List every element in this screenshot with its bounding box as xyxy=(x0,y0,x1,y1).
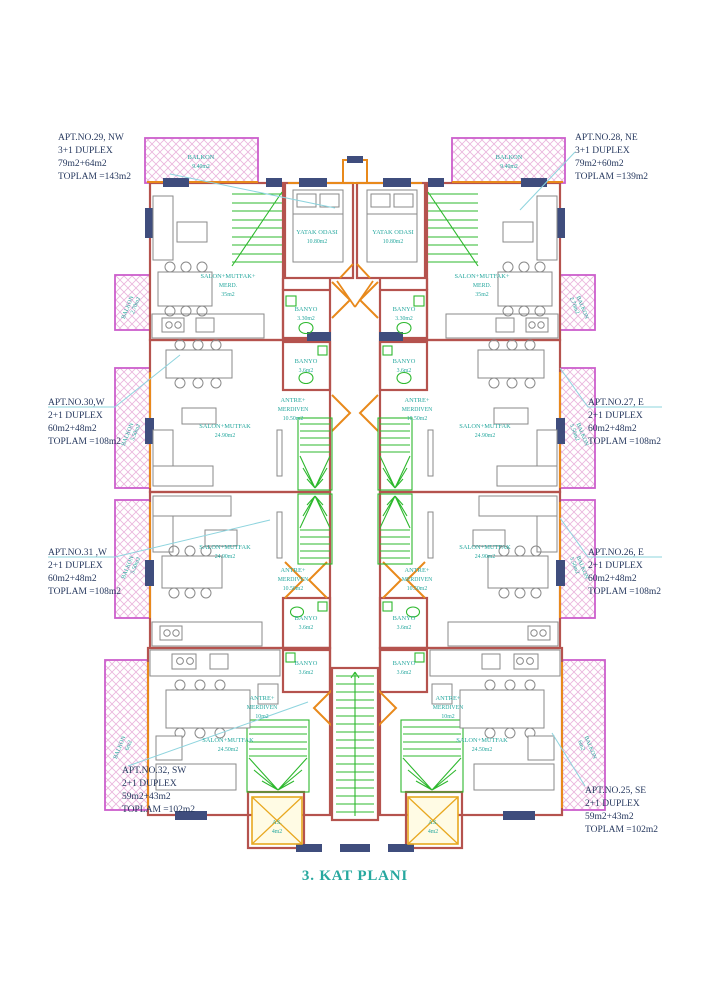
shower-icon xyxy=(318,602,327,611)
apt25-line3: 59m2+43m2 xyxy=(585,812,634,822)
room-area-bedroom-right: 10.80m2 xyxy=(383,239,404,245)
room-area-antre-sw: 10m2 xyxy=(255,714,268,720)
room-label-antre-w1b: MERDIVEN xyxy=(278,407,309,413)
apt29-line4: TOPLAM =143m2 xyxy=(58,172,131,182)
room-label-banyo-e3: BANYO xyxy=(393,615,416,622)
room-area-balkon-ne: 9.40m2 xyxy=(500,164,518,170)
entry-door-chevron-apt30 xyxy=(332,395,350,431)
apt27-line2: 2+1 DUPLEX xyxy=(588,411,643,421)
room-area-salon-ne: 35m2 xyxy=(475,292,488,298)
room-area-salon-se: 24.50m2 xyxy=(472,747,493,753)
apt26-line4: TOPLAM =108m2 xyxy=(588,587,661,597)
room-label-antre-seb: MERDIVEN xyxy=(433,705,464,711)
apartment-callout-apt27: APT.NO.27, E 2+1 DUPLEX 60m2+48m2 TOPLAM… xyxy=(588,398,661,447)
room-label-banyo-w4: BANYO xyxy=(295,660,318,667)
room-area-banyo-wl: 3.30m2 xyxy=(297,316,315,322)
room-label-antre-e1: ANTRE+ xyxy=(405,397,430,404)
apt32-line4: TOPLAM =102m2 xyxy=(122,805,195,815)
apt25-line4: TOPLAM =102m2 xyxy=(585,825,658,835)
apt26-line3: 60m2+48m2 xyxy=(588,574,637,584)
apt25-line2: 2+1 DUPLEX xyxy=(585,799,640,809)
stair-apt30 xyxy=(298,418,332,490)
room-area-banyo-w2: 3.6m2 xyxy=(299,368,314,374)
room-label-salon-sw: SALON+MUTFAK xyxy=(202,737,254,744)
room-area-elevator-left: 4m2 xyxy=(272,829,282,835)
apt29-line3: 79m2+64m2 xyxy=(58,159,107,169)
apt25-line1: APT.NO.25, SE xyxy=(585,786,646,796)
room-label-antre-sw: ANTRE+ xyxy=(250,695,275,702)
room-label-balkon-ne: BALKON xyxy=(496,154,523,161)
room-area-banyo-e4: 3.6m2 xyxy=(397,670,412,676)
room-label-antre-w2: ANTRE+ xyxy=(281,567,306,574)
room-label-banyo-el: BANYO xyxy=(393,306,416,313)
floor-plan-page: APT.NO.29, NW 3+1 DUPLEX 79m2+64m2 TOPLA… xyxy=(0,0,707,1000)
room-label-elevator-left: AS. xyxy=(272,819,282,826)
floor-plan-svg: APT.NO.29, NW 3+1 DUPLEX 79m2+64m2 TOPLA… xyxy=(0,0,707,1000)
room-label-salon-w1: SALON+MUTFAK xyxy=(199,423,251,430)
room-label-salon-ne: SALON+MUTFAK+ xyxy=(454,273,509,280)
dining-table xyxy=(166,350,232,378)
room-label-salon-e2: SALON+MUTFAK xyxy=(459,544,511,551)
apt29-line2: 3+1 DUPLEX xyxy=(58,146,113,156)
room-label-bedroom-left: YATAK ODASI xyxy=(296,229,338,236)
sofa xyxy=(153,466,213,486)
shower-icon xyxy=(286,296,296,306)
room-label-banyo-e2: BANYO xyxy=(393,358,416,365)
apt30-line1: APT.NO.30,W xyxy=(48,398,105,408)
toilet-icon xyxy=(299,373,313,384)
apt26-line2: 2+1 DUPLEX xyxy=(588,561,643,571)
apt28-line1: APT.NO.28, NE xyxy=(575,133,638,143)
apt30-line2: 2+1 DUPLEX xyxy=(48,411,103,421)
apt30-line3: 60m2+48m2 xyxy=(48,424,97,434)
apt27-line4: TOPLAM =108m2 xyxy=(588,437,661,447)
apartment-callout-apt28: APT.NO.28, NE 3+1 DUPLEX 79m2+60m2 TOPLA… xyxy=(575,133,648,182)
apartment-callout-apt31: APT.NO.31 ,W 2+1 DUPLEX 60m2+48m2 TOPLAM… xyxy=(48,548,121,597)
apt31-line2: 2+1 DUPLEX xyxy=(48,561,103,571)
room-area-salon-nw: 35m2 xyxy=(221,292,234,298)
stair-apt29 xyxy=(232,192,282,266)
stair-apt31 xyxy=(298,494,332,564)
entry-door-chevron-apt31b xyxy=(309,562,327,598)
room-area-banyo-el: 3.30m2 xyxy=(395,316,413,322)
room-area-salon-e2: 24.90m2 xyxy=(475,554,496,560)
shower-icon xyxy=(318,346,327,355)
apt26-line1: APT.NO.26, E xyxy=(588,548,644,558)
room-area-salon-e1: 24.90m2 xyxy=(475,433,496,439)
coffee-table xyxy=(177,222,207,242)
room-label-salon-se: SALON+MUTFAK xyxy=(456,737,508,744)
room-label-antre-e2: ANTRE+ xyxy=(405,567,430,574)
sofa xyxy=(153,496,231,516)
room-area-antre-e1: 10.50m2 xyxy=(407,416,428,422)
sofa xyxy=(153,516,173,552)
apt30-line4: TOPLAM =108m2 xyxy=(48,437,121,447)
room-area-salon-sw: 24.50m2 xyxy=(218,747,239,753)
apt27-line1: APT.NO.27, E xyxy=(588,398,644,408)
room-area-salon-w2: 24.90m2 xyxy=(215,554,236,560)
apt31-line1: APT.NO.31 ,W xyxy=(48,548,107,558)
room-label-antre-w1: ANTRE+ xyxy=(281,397,306,404)
room-area-bedroom-left: 10.80m2 xyxy=(307,239,328,245)
room-label-antre-se: ANTRE+ xyxy=(436,695,461,702)
apartment-callout-apt30: APT.NO.30,W 2+1 DUPLEX 60m2+48m2 TOPLAM … xyxy=(48,398,121,447)
room-area-antre-e2: 10.50m2 xyxy=(407,586,428,592)
plan-right-half xyxy=(357,138,605,852)
room-label-antre-e1b: MERDIVEN xyxy=(402,407,433,413)
room-area-antre-se: 10m2 xyxy=(441,714,454,720)
plan-left-half xyxy=(105,138,353,852)
apt31-line4: TOPLAM =108m2 xyxy=(48,587,121,597)
room-label-antre-e2b: MERDIVEN xyxy=(402,577,433,583)
stair-apt32 xyxy=(247,720,309,792)
apt32-line2: 2+1 DUPLEX xyxy=(122,779,177,789)
room-area-salon-w1: 24.90m2 xyxy=(215,433,236,439)
coffee-table xyxy=(182,408,216,424)
room-label-salon-nw2: MERD. xyxy=(219,283,238,289)
apt28-line2: 3+1 DUPLEX xyxy=(575,146,630,156)
room-area-elevator-right: 4m2 xyxy=(428,829,438,835)
tv-unit xyxy=(277,430,282,476)
page-title: 3. KAT PLANI xyxy=(302,868,408,884)
apt31-line3: 60m2+48m2 xyxy=(48,574,97,584)
room-area-banyo-e3: 3.6m2 xyxy=(397,625,412,631)
room-area-antre-w2: 10.50m2 xyxy=(283,586,304,592)
apartment-callout-apt26: APT.NO.26, E 2+1 DUPLEX 60m2+48m2 TOPLAM… xyxy=(588,548,661,597)
apartment-callout-apt29: APT.NO.29, NW 3+1 DUPLEX 79m2+64m2 TOPLA… xyxy=(58,133,131,182)
apt32-line3: 59m2+43m2 xyxy=(122,792,171,802)
room-label-balkon-nw: BALKON xyxy=(188,154,215,161)
room-area-banyo-w4: 3.6m2 xyxy=(299,670,314,676)
apt27-line3: 60m2+48m2 xyxy=(588,424,637,434)
room-area-banyo-e2: 3.6m2 xyxy=(397,368,412,374)
room-label-banyo-w2: BANYO xyxy=(295,358,318,365)
room-label-banyo-wl: BANYO xyxy=(295,306,318,313)
dining-table xyxy=(162,556,222,588)
apt28-line3: 79m2+60m2 xyxy=(575,159,624,169)
room-label-salon-e1: SALON+MUTFAK xyxy=(459,423,511,430)
room-label-antre-swb: MERDIVEN xyxy=(247,705,278,711)
room-label-salon-nw: SALON+MUTFAK+ xyxy=(200,273,255,280)
stair-central xyxy=(336,672,374,816)
room-label-banyo-e4: BANYO xyxy=(393,660,416,667)
room-label-banyo-w3: BANYO xyxy=(295,615,318,622)
room-label-antre-w2b: MERDIVEN xyxy=(278,577,309,583)
room-area-antre-w1: 10.50m2 xyxy=(283,416,304,422)
room-area-banyo-w3: 3.6m2 xyxy=(299,625,314,631)
tv-unit xyxy=(277,512,282,558)
sofa xyxy=(153,196,173,260)
dining-table xyxy=(166,690,250,728)
room-label-salon-w2: SALON+MUTFAK xyxy=(199,544,251,551)
room-label-bedroom-right: YATAK ODASI xyxy=(372,229,414,236)
toilet-icon xyxy=(299,323,313,334)
room-label-salon-ne2: MERD. xyxy=(473,283,492,289)
apt28-line4: TOPLAM =139m2 xyxy=(575,172,648,182)
room-area-balkon-nw: 9.40m2 xyxy=(192,164,210,170)
apt32-line1: APT.NO.32, SW xyxy=(122,766,186,776)
apt29-line1: APT.NO.29, NW xyxy=(58,133,124,143)
room-label-elevator-right: AS. xyxy=(428,819,438,826)
